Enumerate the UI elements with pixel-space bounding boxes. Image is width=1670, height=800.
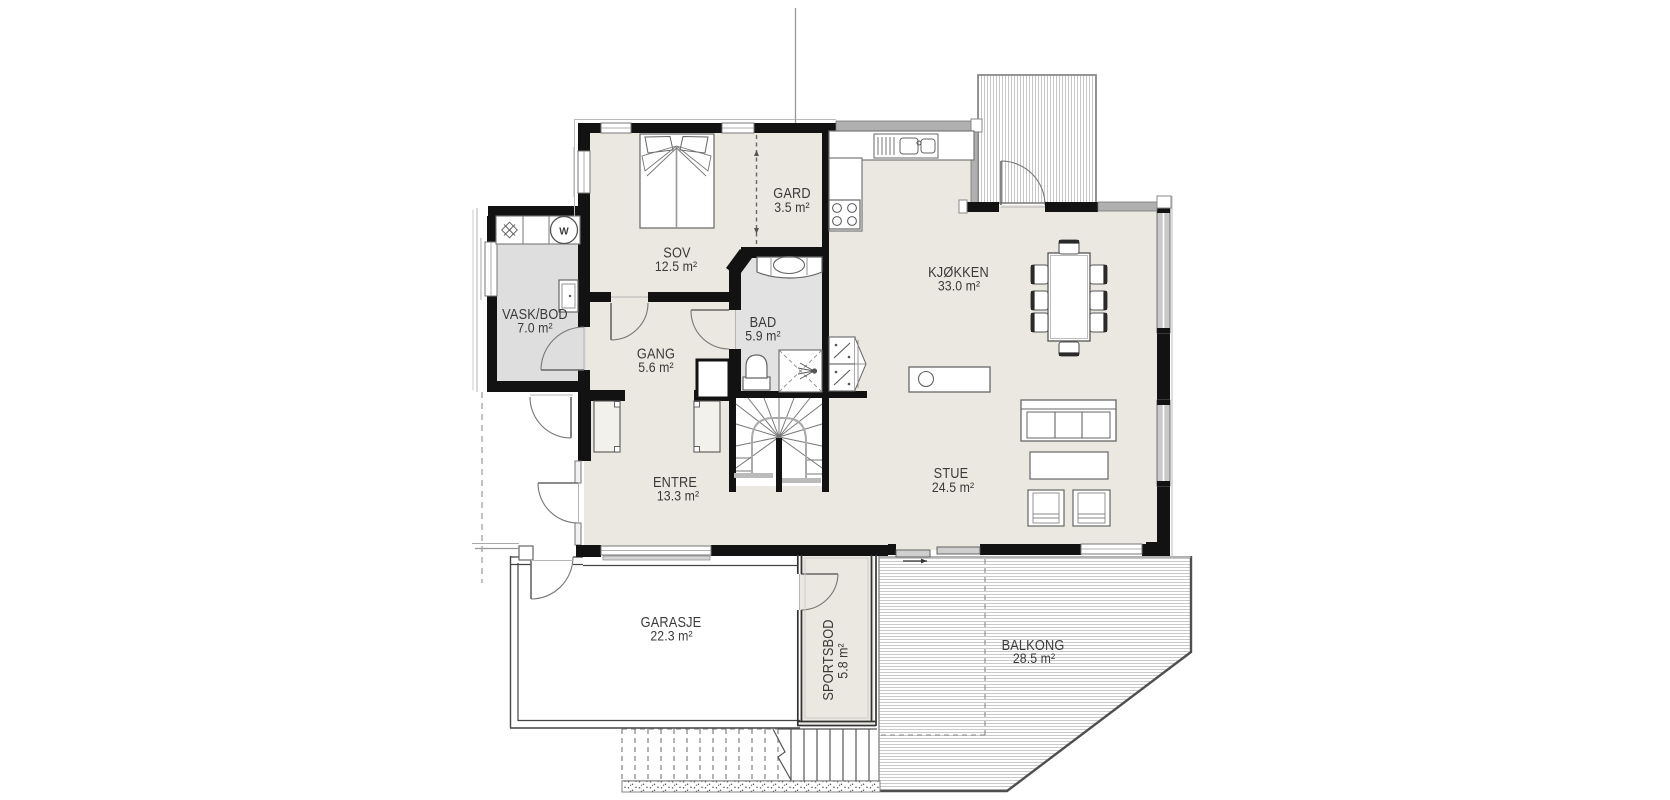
svg-text:28.5 m²: 28.5 m² [1013,650,1056,666]
svg-text:5.6 m²: 5.6 m² [638,359,674,375]
svg-text:7.0 m²: 7.0 m² [517,320,553,336]
svg-text:W: W [559,227,569,238]
svg-text:22.3 m²: 22.3 m² [650,628,693,644]
svg-text:12.5 m²: 12.5 m² [655,258,698,274]
svg-text:13.3 m²: 13.3 m² [657,488,700,504]
svg-text:5.8 m²: 5.8 m² [835,643,851,679]
svg-text:3.5 m²: 3.5 m² [774,199,810,215]
svg-text:24.5 m²: 24.5 m² [932,479,975,495]
svg-text:33.0 m²: 33.0 m² [938,278,981,294]
svg-text:5.9 m²: 5.9 m² [745,328,781,344]
